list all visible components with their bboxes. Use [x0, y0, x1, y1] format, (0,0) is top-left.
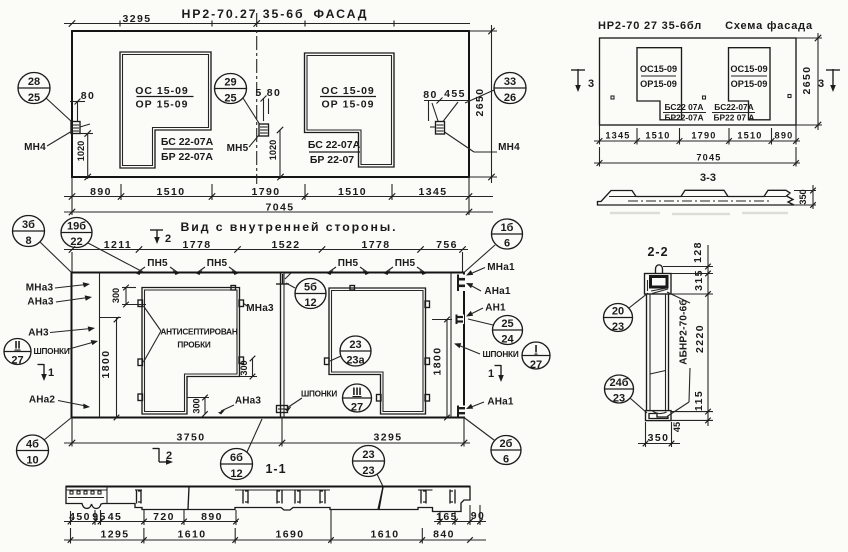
svg-text:1295: 1295: [101, 529, 130, 541]
svg-text:БС 22-07А: БС 22-07А: [161, 136, 214, 148]
svg-text:7045: 7045: [266, 202, 295, 214]
svg-text:БР 22-07А: БР 22-07А: [161, 151, 213, 163]
svg-text:25: 25: [224, 93, 236, 105]
svg-text:АН3: АН3: [28, 328, 49, 339]
svg-text:3: 3: [588, 78, 594, 90]
svg-text:12: 12: [304, 297, 316, 309]
svg-text:ОР15-09: ОР15-09: [731, 79, 768, 89]
svg-text:1790: 1790: [691, 131, 716, 141]
svg-text:МН4: МН4: [24, 142, 46, 153]
svg-text:2-2: 2-2: [647, 245, 668, 259]
svg-text:25: 25: [501, 318, 513, 330]
svg-text:3750: 3750: [177, 432, 206, 444]
svg-text:80: 80: [267, 87, 281, 99]
svg-text:МН4: МН4: [498, 142, 520, 153]
svg-text:ШПОНКИ: ШПОНКИ: [482, 350, 518, 359]
svg-text:350: 350: [648, 432, 670, 444]
svg-text:23: 23: [362, 449, 374, 461]
svg-text:I: I: [534, 344, 537, 356]
svg-text:1690: 1690: [276, 529, 305, 541]
svg-text:90: 90: [471, 510, 485, 522]
svg-text:45: 45: [108, 511, 122, 523]
svg-text:1610: 1610: [178, 529, 207, 541]
svg-text:33: 33: [504, 76, 516, 88]
svg-text:95: 95: [92, 511, 106, 523]
svg-text:10: 10: [26, 455, 38, 467]
svg-text:1б: 1б: [501, 222, 514, 234]
svg-text:2б: 2б: [500, 438, 513, 450]
svg-text:27: 27: [530, 359, 542, 371]
svg-text:12: 12: [230, 468, 242, 480]
svg-text:3295: 3295: [374, 432, 403, 444]
svg-text:890: 890: [90, 186, 112, 198]
svg-text:1-1: 1-1: [265, 462, 286, 476]
svg-text:1510: 1510: [157, 186, 186, 198]
svg-text:3б: 3б: [22, 219, 35, 231]
svg-text:БС 22-07А: БС 22-07А: [308, 139, 361, 151]
svg-text:Вид с внутренней стороны.: Вид с внутренней стороны.: [180, 220, 397, 234]
svg-text:80: 80: [81, 90, 95, 102]
svg-text:20: 20: [612, 306, 624, 318]
svg-text:300: 300: [239, 360, 249, 375]
svg-text:АН1: АН1: [485, 303, 506, 314]
svg-text:300: 300: [111, 288, 121, 303]
svg-text:24: 24: [501, 334, 514, 346]
svg-text:23: 23: [362, 465, 374, 477]
svg-text:БР22 07 А: БР22 07 А: [714, 113, 755, 123]
svg-text:ШПОНКИ: ШПОНКИ: [301, 390, 337, 399]
svg-text:7045: 7045: [696, 153, 721, 163]
svg-text:2: 2: [165, 233, 171, 245]
svg-text:АНа1: АНа1: [487, 397, 514, 408]
svg-text:ОС15-09: ОС15-09: [730, 64, 767, 74]
svg-text:БР 22-07: БР 22-07: [310, 154, 354, 166]
svg-text:23: 23: [349, 339, 361, 351]
svg-text:890: 890: [775, 131, 794, 141]
svg-text:ФАСАД: ФАСАД: [314, 7, 369, 21]
svg-text:ОР 15-09: ОР 15-09: [136, 99, 189, 111]
svg-text:128: 128: [692, 241, 704, 263]
svg-text:24б: 24б: [609, 377, 628, 389]
svg-text:1778: 1778: [183, 239, 212, 251]
svg-text:3-3: 3-3: [700, 172, 716, 184]
svg-text:1345: 1345: [419, 186, 448, 198]
svg-text:1020: 1020: [268, 140, 278, 160]
svg-text:2650: 2650: [801, 66, 813, 95]
svg-text:БС22-07А: БС22-07А: [714, 102, 753, 112]
svg-text:165: 165: [436, 511, 458, 523]
svg-text:Схема фасада: Схема фасада: [725, 20, 813, 32]
svg-text:6: 6: [503, 454, 509, 466]
svg-text:350: 350: [798, 189, 808, 204]
svg-text:АБНР2-70-6б: АБНР2-70-6б: [678, 299, 690, 365]
svg-text:МНа1: МНа1: [487, 262, 515, 273]
svg-text:ПН5: ПН5: [395, 258, 416, 269]
svg-text:6б: 6б: [230, 452, 243, 464]
svg-text:80: 80: [423, 89, 437, 101]
svg-text:2: 2: [166, 450, 172, 462]
svg-text:АНа1: АНа1: [484, 286, 511, 297]
svg-text:2650: 2650: [474, 88, 486, 117]
svg-text:ПН5: ПН5: [338, 258, 359, 269]
svg-text:1: 1: [488, 368, 494, 380]
svg-text:1800: 1800: [100, 350, 112, 379]
svg-text:АНа2: АНа2: [29, 395, 56, 406]
svg-text:8: 8: [25, 235, 31, 247]
svg-text:300: 300: [192, 398, 202, 413]
svg-text:3: 3: [818, 78, 824, 90]
svg-text:ПН5: ПН5: [147, 258, 168, 269]
svg-text:450: 450: [69, 511, 91, 523]
svg-text:1510: 1510: [737, 131, 762, 141]
svg-text:1: 1: [48, 367, 54, 379]
svg-text:АНа3: АНа3: [27, 297, 54, 308]
svg-text:НР2-70.27 35-6б: НР2-70.27 35-6б: [182, 7, 305, 21]
svg-text:БР22-07А: БР22-07А: [664, 113, 703, 123]
svg-text:29: 29: [224, 77, 236, 89]
svg-text:ОС 15-09: ОС 15-09: [135, 85, 189, 97]
svg-text:МНа3: МНа3: [246, 303, 274, 314]
svg-text:23: 23: [612, 321, 624, 333]
svg-text:II: II: [14, 340, 20, 352]
svg-text:ОР15-09: ОР15-09: [640, 79, 677, 89]
svg-text:455: 455: [444, 88, 466, 100]
svg-text:ПН5: ПН5: [207, 258, 228, 269]
svg-text:26: 26: [504, 92, 516, 104]
svg-text:НР2-70 27 35-6бл: НР2-70 27 35-6бл: [598, 20, 702, 32]
svg-text:3295: 3295: [123, 13, 152, 25]
svg-text:1020: 1020: [76, 141, 86, 161]
svg-text:23а: 23а: [346, 355, 365, 367]
svg-text:1610: 1610: [371, 529, 400, 541]
svg-text:ОР 15-09: ОР 15-09: [322, 99, 375, 111]
svg-text:АНа3: АНа3: [235, 396, 262, 407]
svg-text:1510: 1510: [645, 131, 670, 141]
svg-text:22: 22: [70, 236, 82, 248]
svg-text:45: 45: [672, 422, 682, 432]
svg-text:БС22 07А: БС22 07А: [665, 102, 704, 112]
svg-text:27: 27: [351, 402, 363, 414]
svg-text:МН5: МН5: [227, 143, 249, 154]
svg-text:720: 720: [153, 511, 175, 523]
svg-text:756: 756: [436, 239, 458, 251]
svg-text:6: 6: [504, 238, 510, 250]
svg-text:19б: 19б: [67, 221, 86, 233]
svg-text:ПРОБКИ: ПРОБКИ: [177, 341, 210, 350]
svg-text:1211: 1211: [104, 239, 132, 251]
svg-text:1345: 1345: [605, 131, 630, 141]
svg-text:ШПОНКИ: ШПОНКИ: [33, 347, 69, 356]
svg-text:ОС15-09: ОС15-09: [640, 64, 677, 74]
svg-text:28: 28: [28, 76, 40, 88]
svg-text:III: III: [352, 386, 361, 398]
svg-text:1778: 1778: [362, 239, 391, 251]
svg-text:25: 25: [28, 92, 40, 104]
svg-text:1800: 1800: [432, 347, 444, 376]
svg-text:890: 890: [201, 511, 223, 523]
svg-text:23: 23: [613, 393, 625, 405]
svg-text:2220: 2220: [694, 324, 706, 353]
svg-text:5: 5: [255, 87, 262, 99]
svg-text:МНа3: МНа3: [26, 283, 54, 294]
svg-text:27: 27: [11, 355, 23, 367]
svg-text:1522: 1522: [272, 239, 301, 251]
svg-text:1790: 1790: [252, 186, 281, 198]
svg-text:315: 315: [693, 269, 705, 291]
svg-text:4б: 4б: [26, 439, 39, 451]
svg-text:5б: 5б: [304, 282, 317, 294]
svg-text:1510: 1510: [338, 186, 367, 198]
svg-text:115: 115: [693, 390, 705, 411]
svg-text:840: 840: [433, 529, 455, 541]
svg-text:АНТИСЕПТИРОВАН: АНТИСЕПТИРОВАН: [160, 328, 237, 337]
svg-text:ОС 15-09: ОС 15-09: [321, 85, 375, 97]
